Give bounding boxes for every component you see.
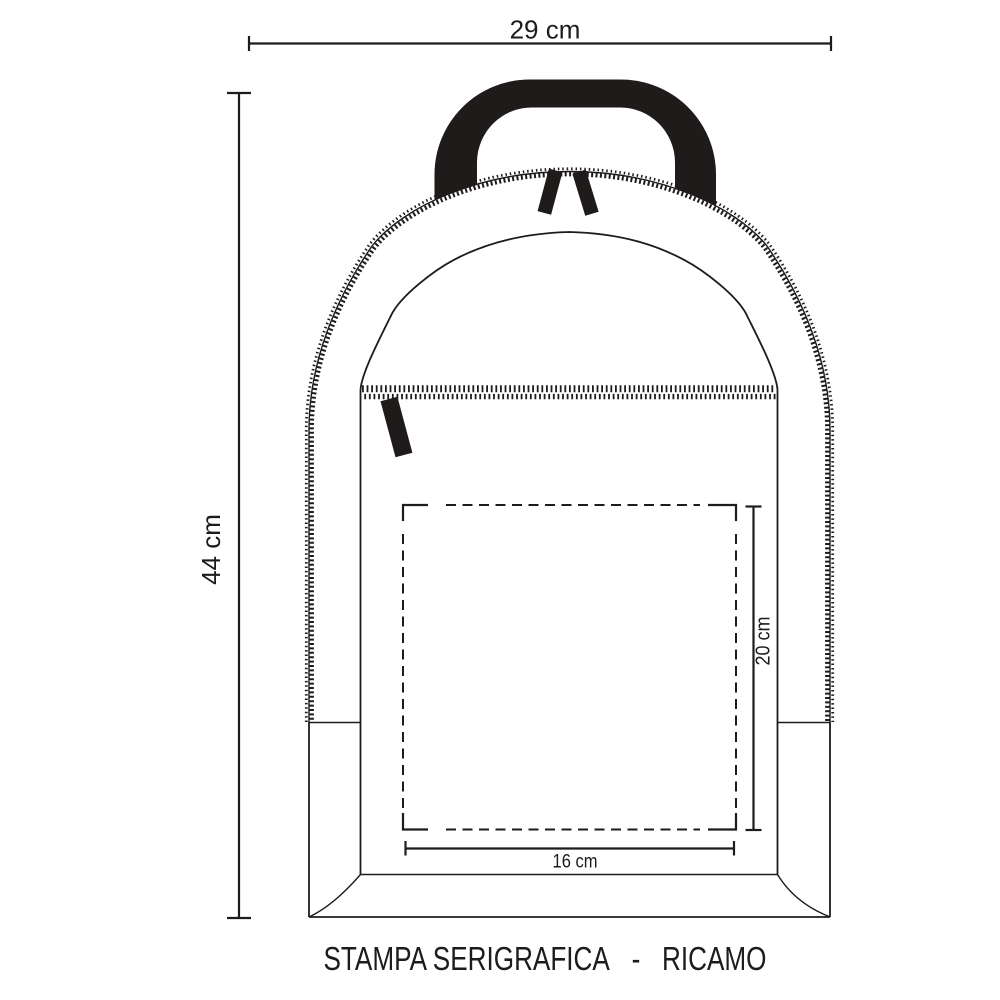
svg-text:29 cm: 29 cm — [510, 15, 581, 45]
svg-text:20 cm: 20 cm — [753, 617, 775, 666]
svg-text:STAMPA SERIGRAFICA - RICAM: STAMPA SERIGRAFICA - RICAMO — [324, 940, 767, 977]
svg-text:44 cm: 44 cm — [196, 514, 226, 585]
svg-text:16 cm: 16 cm — [553, 852, 598, 873]
